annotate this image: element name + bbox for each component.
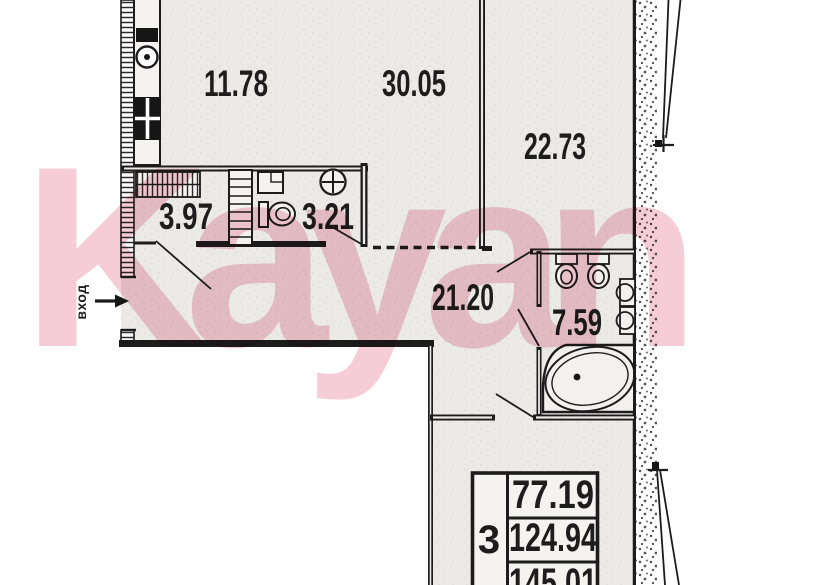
kitchen-counter (134, 0, 160, 165)
left-wall (121, 0, 134, 277)
rooms-count-value: 3 (478, 518, 500, 562)
shelving-icon (229, 170, 252, 245)
kitchen-appliance (136, 28, 158, 42)
toilet2-tank (556, 254, 577, 264)
bidet-tank (588, 254, 609, 264)
bathtub-icon (543, 345, 633, 412)
floor-plan: вход 11.78 30.05 22.73 3.97 3.21 21.20 7… (0, 0, 828, 585)
summary-table: 3 77.19 124.94 145.01 (473, 473, 598, 585)
floor-plan-drawing: вход 11.78 30.05 22.73 3.97 3.21 21.20 7… (0, 0, 828, 585)
toilet-icon (269, 203, 295, 226)
living-total-value: 77.19 (512, 473, 594, 517)
bathroom-area-label: 7.59 (552, 302, 602, 343)
bathtub-drain (574, 374, 581, 381)
wc-area-label: 3.21 (302, 196, 354, 237)
window-swing-top-icon (653, 0, 681, 152)
hall-area-label: 21.20 (432, 277, 494, 318)
kitchen-area-label: 11.78 (204, 63, 268, 104)
right-wall (636, 0, 657, 585)
closet-area-label: 3.97 (159, 196, 213, 237)
toilet-tank (259, 202, 268, 227)
living-area-label: 30.05 (382, 63, 446, 104)
entrance-label: вход (73, 284, 89, 319)
kitchen-fixtures (134, 0, 161, 165)
entrance-marker: вход (73, 284, 129, 319)
area-with-balcony-value: 145.01 (509, 561, 597, 585)
bedroom-area-label: 22.73 (524, 126, 586, 167)
area-total-value: 124.94 (509, 516, 598, 560)
